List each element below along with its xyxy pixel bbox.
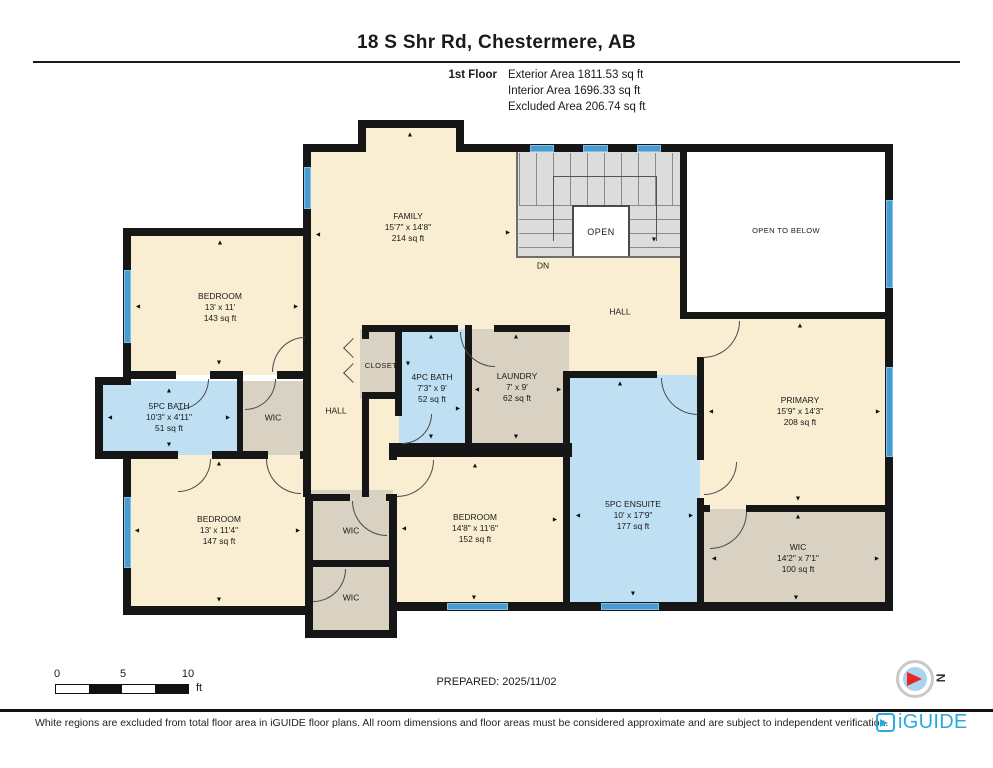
- dimension-arrow-up-icon: ▲: [513, 334, 520, 341]
- open-label: OPEN: [587, 227, 615, 237]
- label-bedroom-2: BEDROOM13' x 11'4"147 sq ft: [197, 514, 241, 548]
- wall: [680, 144, 687, 319]
- wall: [362, 392, 402, 399]
- disclaimer-text: White regions are excluded from total fl…: [35, 717, 888, 729]
- dimension-arrow-up-icon: ▲: [472, 463, 479, 470]
- dimension-arrow-right-icon: ►: [552, 517, 559, 524]
- wall: [395, 396, 402, 416]
- wall: [362, 325, 458, 332]
- dimension-arrow-right-icon: ►: [875, 409, 882, 416]
- window: [886, 367, 893, 457]
- dimension-arrow-up-icon: ▲: [216, 461, 223, 468]
- page-title: 18 S Shr Rd, Chestermere, AB: [0, 32, 993, 54]
- wall: [697, 498, 704, 603]
- wall: [313, 560, 389, 567]
- wall: [697, 602, 893, 611]
- dimension-arrow-down-icon: ▼: [166, 442, 173, 449]
- stair-edge: [516, 256, 682, 258]
- footer-divider: [0, 709, 993, 712]
- stairs-down-arrow-icon: ▼: [651, 237, 658, 244]
- wall: [303, 144, 366, 152]
- hall-west-corridor: [307, 371, 366, 501]
- dimension-arrow-down-icon: ▼: [216, 597, 223, 604]
- stat-exterior: Exterior Area 1811.53 sq ft: [508, 69, 643, 81]
- wall: [389, 496, 397, 638]
- wall: [494, 325, 570, 332]
- wall: [303, 371, 311, 497]
- window: [530, 145, 554, 152]
- window: [124, 270, 131, 343]
- window: [304, 167, 311, 209]
- dimension-arrow-right-icon: ►: [688, 513, 695, 520]
- dimension-arrow-left-icon: ◄: [711, 556, 718, 563]
- dimension-arrow-down-icon: ▼: [513, 434, 520, 441]
- dimension-arrow-up-icon: ▲: [795, 514, 802, 521]
- dimension-arrow-right-icon: ►: [225, 415, 232, 422]
- dimension-arrow-left-icon: ◄: [474, 387, 481, 394]
- header-divider: [33, 61, 960, 63]
- floor-label: 1st Floor: [392, 69, 497, 81]
- wall: [389, 443, 397, 460]
- iguide-logo-text: iGUIDE: [898, 711, 968, 734]
- dimension-arrow-left-icon: ◄: [315, 232, 322, 239]
- dimension-arrow-right-icon: ►: [874, 556, 881, 563]
- wall: [305, 494, 313, 638]
- wall: [277, 371, 311, 379]
- wall: [123, 228, 311, 236]
- dimension-arrow-right-icon: ►: [293, 304, 300, 311]
- wall: [123, 371, 176, 379]
- label-hall-west: HALL: [325, 405, 346, 416]
- dimension-arrow-left-icon: ◄: [708, 409, 715, 416]
- dimension-arrow-up-icon: ▲: [797, 323, 804, 330]
- label-primary: PRIMARY15'9" x 14'3"208 sq ft: [777, 395, 824, 429]
- dimension-arrow-up-icon: ▲: [617, 381, 624, 388]
- dimension-arrow-up-icon: ▲: [217, 240, 224, 247]
- dimension-arrow-down-icon: ▼: [471, 595, 478, 602]
- label-wic-hall: WIC: [265, 412, 282, 423]
- wall: [237, 377, 243, 459]
- floorplan-sheet: 18 S Shr Rd, Chestermere, AB 1st Floor E…: [0, 0, 993, 768]
- dimension-arrow-left-icon: ◄: [135, 304, 142, 311]
- dimension-arrow-up-icon: ▲: [166, 388, 173, 395]
- wall: [697, 357, 704, 460]
- dimension-arrow-right-icon: ►: [556, 387, 563, 394]
- compass-north-label: N: [933, 674, 947, 683]
- wall: [386, 494, 397, 501]
- compass-icon: [896, 660, 934, 698]
- wall: [305, 630, 397, 638]
- label-open-to-below: OPEN TO BELOW: [752, 226, 820, 236]
- label-bedroom-3: BEDROOM14'8" x 11'6"152 sq ft: [452, 512, 498, 546]
- label-family: FAMILY15'7" x 14'8"214 sq ft: [385, 211, 432, 245]
- dimension-arrow-down-icon: ▼: [630, 591, 637, 598]
- dimension-arrow-up-icon: ▲: [407, 132, 414, 139]
- wall: [563, 371, 657, 378]
- label-closet: CLOSET: [365, 361, 397, 371]
- label-dn: DN: [537, 260, 549, 271]
- wall: [210, 371, 243, 379]
- dimension-arrow-left-icon: ◄: [401, 526, 408, 533]
- wall: [123, 606, 313, 615]
- dimension-arrow-down-icon: ▼: [405, 361, 412, 368]
- iguide-brand: iGUIDE: [876, 711, 968, 734]
- label-bedroom-1: BEDROOM13' x 11'143 sq ft: [198, 291, 242, 325]
- label-wic-primary: WIC14'2" x 7'1"100 sq ft: [777, 542, 819, 576]
- wall: [746, 505, 893, 512]
- wall: [305, 494, 350, 501]
- wall: [95, 377, 103, 459]
- label-laundry: LAUNDRY7' x 9'62 sq ft: [497, 371, 537, 405]
- dimension-arrow-down-icon: ▼: [428, 434, 435, 441]
- dimension-arrow-left-icon: ◄: [575, 513, 582, 520]
- window: [886, 200, 893, 288]
- label-hall-east: HALL: [609, 306, 630, 317]
- wall: [358, 120, 464, 128]
- dimension-arrow-right-icon: ►: [455, 406, 462, 413]
- label-wic-1: WIC: [343, 525, 360, 536]
- stat-excluded: Excluded Area 206.74 sq ft: [508, 101, 645, 113]
- iguide-logo-icon: [876, 713, 895, 732]
- dimension-arrow-left-icon: ◄: [134, 528, 141, 535]
- dimension-arrow-down-icon: ▼: [216, 360, 223, 367]
- window: [601, 603, 659, 610]
- window: [447, 603, 508, 610]
- wall: [680, 312, 893, 319]
- dimension-arrow-left-icon: ◄: [107, 415, 114, 422]
- stair-open-box: OPEN: [572, 205, 630, 258]
- dimension-arrow-down-icon: ▼: [793, 595, 800, 602]
- window: [637, 145, 661, 152]
- wall: [95, 451, 178, 459]
- stair-edge: [516, 151, 518, 258]
- wall: [456, 144, 893, 152]
- wall: [697, 505, 710, 512]
- stat-interior: Interior Area 1696.33 sq ft: [508, 85, 640, 97]
- dimension-arrow-right-icon: ►: [505, 230, 512, 237]
- wall: [563, 371, 570, 607]
- dimension-arrow-down-icon: ▼: [795, 496, 802, 503]
- window: [583, 145, 608, 152]
- label-ensuite: 5PC ENSUITE10' x 17'9"177 sq ft: [605, 499, 661, 533]
- dimension-arrow-up-icon: ▲: [428, 334, 435, 341]
- label-bath-4pc: 4PC BATH7'3" x 9'52 sq ft: [412, 372, 453, 406]
- wall: [362, 394, 369, 497]
- wall: [391, 443, 572, 457]
- compass-needle-icon: [907, 672, 922, 686]
- window: [124, 497, 131, 568]
- label-wic-2: WIC: [343, 592, 360, 603]
- prepared-date: PREPARED: 2025/11/02: [0, 676, 993, 688]
- dimension-arrow-right-icon: ►: [295, 528, 302, 535]
- label-bath-5pc: 5PC BATH10'3" x 4'11"51 sq ft: [146, 401, 192, 435]
